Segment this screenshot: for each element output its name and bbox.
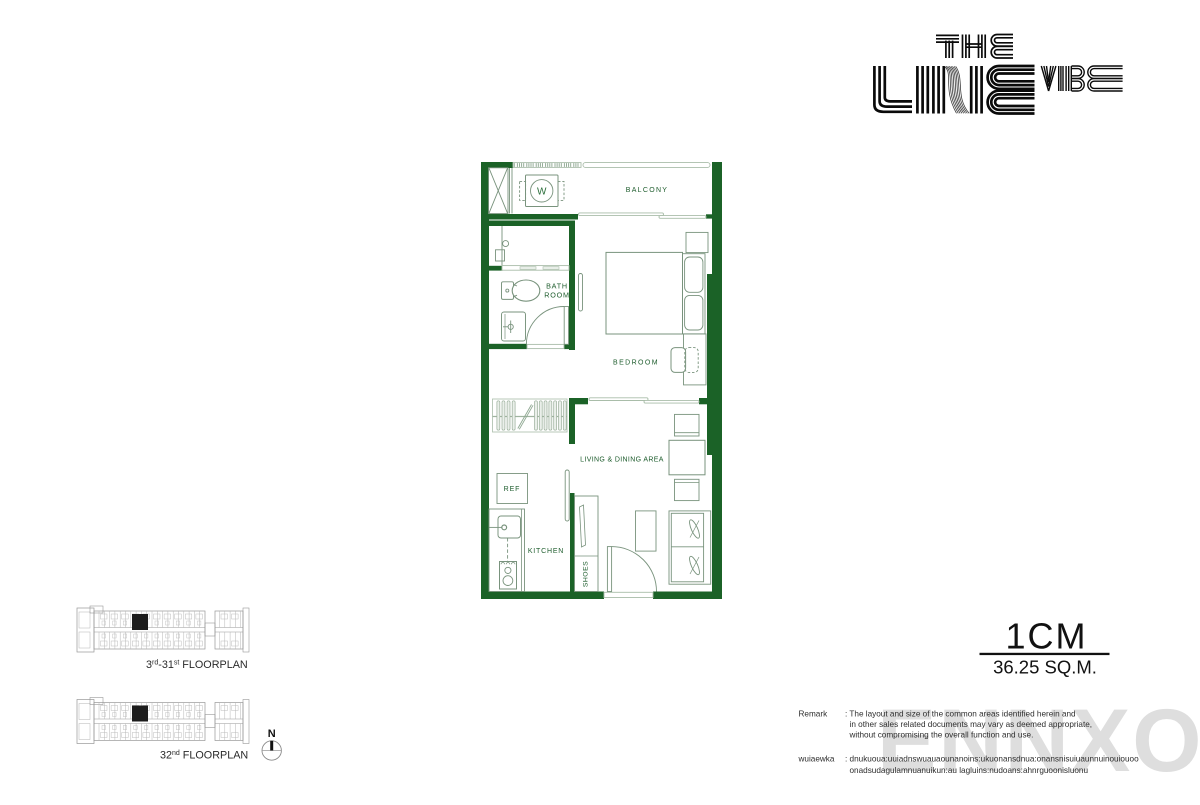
svg-text:BALCONY: BALCONY — [626, 187, 669, 194]
svg-text:: The layout and size of the c: : The layout and size of the common area… — [845, 710, 1076, 719]
svg-text:LIVING & DINING AREA: LIVING & DINING AREA — [580, 457, 664, 464]
svg-text:1CM: 1CM — [1005, 615, 1087, 656]
svg-text:REF: REF — [504, 486, 521, 493]
svg-text:SHOES: SHOES — [583, 561, 590, 587]
svg-text:BATH: BATH — [546, 282, 568, 291]
svg-text:32nd FLOORPLAN: 32nd FLOORPLAN — [160, 750, 248, 762]
svg-text:3rd-31st FLOORPLAN: 3rd-31st FLOORPLAN — [146, 659, 248, 671]
svg-text:without compromising the overa: without compromising the overall functio… — [849, 730, 1034, 739]
svg-text:BEDROOM: BEDROOM — [613, 359, 659, 366]
svg-text:KITCHEN: KITCHEN — [528, 548, 564, 555]
svg-text:wuiaewka: wuiaewka — [798, 754, 835, 763]
svg-text:N: N — [268, 728, 276, 740]
svg-text:W: W — [537, 187, 547, 198]
svg-text:onadsudagulamnuanuikun:au lagl: onadsudagulamnuanuikun:au lagluins:nudoa… — [850, 766, 1089, 775]
svg-text:in other sales related documen: in other sales related documents may var… — [850, 720, 1093, 729]
svg-text:Remark: Remark — [799, 710, 829, 719]
svg-text:36.25 SQ.M.: 36.25 SQ.M. — [993, 656, 1097, 677]
svg-text:: dnukuoua:uuiadnswuauaounanoi: : dnukuoua:uuiadnswuauaounanoins:ukuonan… — [845, 754, 1139, 763]
svg-text:ENNXO: ENNXO — [877, 690, 1200, 790]
svg-text:ROOM: ROOM — [544, 291, 570, 300]
